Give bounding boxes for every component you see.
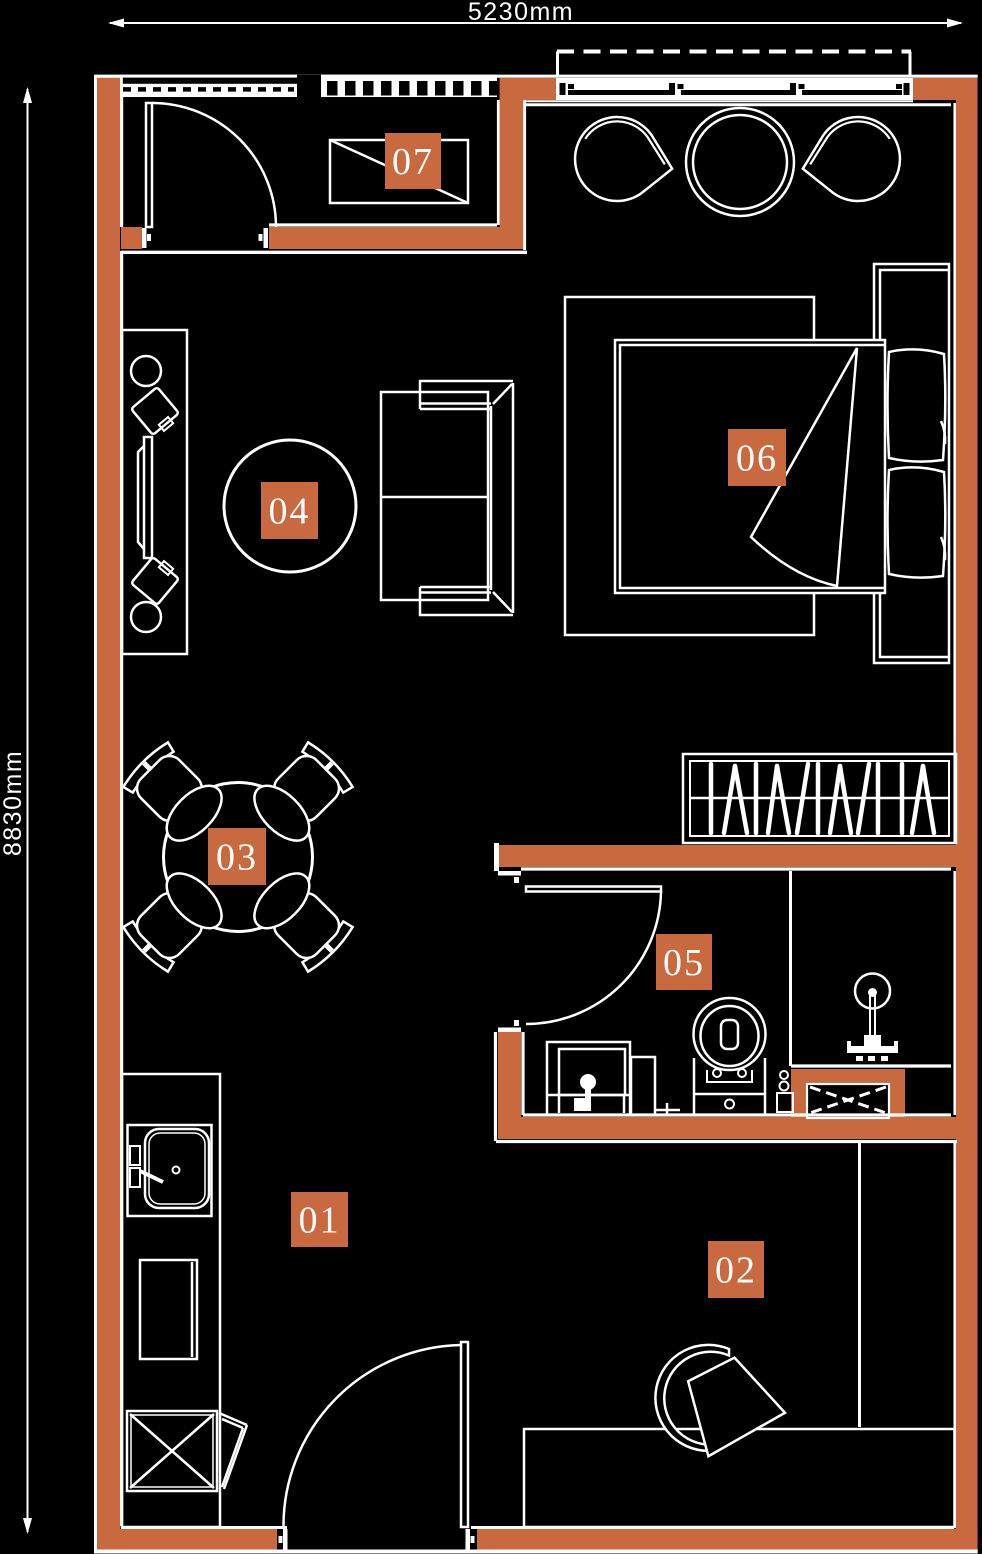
svg-text:04: 04	[269, 491, 311, 533]
svg-text:03: 03	[216, 837, 258, 879]
svg-text:8830mm: 8830mm	[0, 750, 27, 856]
svg-text:05: 05	[663, 942, 705, 984]
svg-text:5230mm: 5230mm	[468, 0, 574, 26]
svg-text:01: 01	[299, 1200, 341, 1242]
svg-text:02: 02	[715, 1250, 757, 1292]
svg-text:06: 06	[736, 438, 778, 480]
svg-text:07: 07	[392, 141, 434, 183]
